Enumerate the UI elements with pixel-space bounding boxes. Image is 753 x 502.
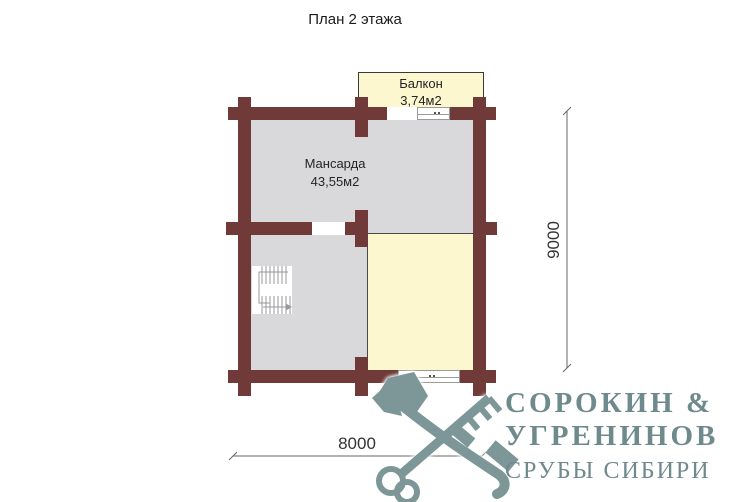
wall-stub-middle <box>355 210 368 247</box>
interior-door-opening <box>312 222 345 235</box>
room-lower-left <box>251 235 367 370</box>
wall-left <box>238 97 251 396</box>
company-name-line2: УГРЕНИНОВ <box>505 420 753 453</box>
dimension-label-width: 8000 <box>307 434 407 454</box>
dimension-line-vertical <box>563 107 571 372</box>
wall-stub-bottom <box>355 357 368 396</box>
room-right-yellow <box>367 233 473 370</box>
mansarda-name-label: Мансарда <box>240 155 430 173</box>
wall-right <box>473 97 486 396</box>
dimension-label-height: 9000 <box>544 205 564 275</box>
floor-plan-canvas: План 2 этажа Балкон 3,74м2 Мансарда 43,5… <box>0 0 753 502</box>
wall-stub-balcony <box>355 97 368 137</box>
company-logo-text: СОРОКИН & УГРЕНИНОВ СРУБЫ СИБИРИ <box>505 387 753 489</box>
room-balcony: Балкон 3,74м2 <box>358 72 484 109</box>
company-tagline: СРУБЫ СИБИРИ <box>505 453 753 489</box>
plan-title: План 2 этажа <box>0 11 710 28</box>
balcony-window <box>417 107 450 120</box>
wall-stub-right <box>486 222 497 235</box>
company-name-line1: СОРОКИН & <box>505 387 753 420</box>
bottom-window <box>398 370 460 383</box>
mansarda-area-label: 43,55м2 <box>240 173 430 191</box>
balcony-door-opening <box>387 107 417 120</box>
mansarda-label: Мансарда 43,55м2 <box>240 155 430 191</box>
balcony-name-label: Балкон <box>359 75 483 92</box>
